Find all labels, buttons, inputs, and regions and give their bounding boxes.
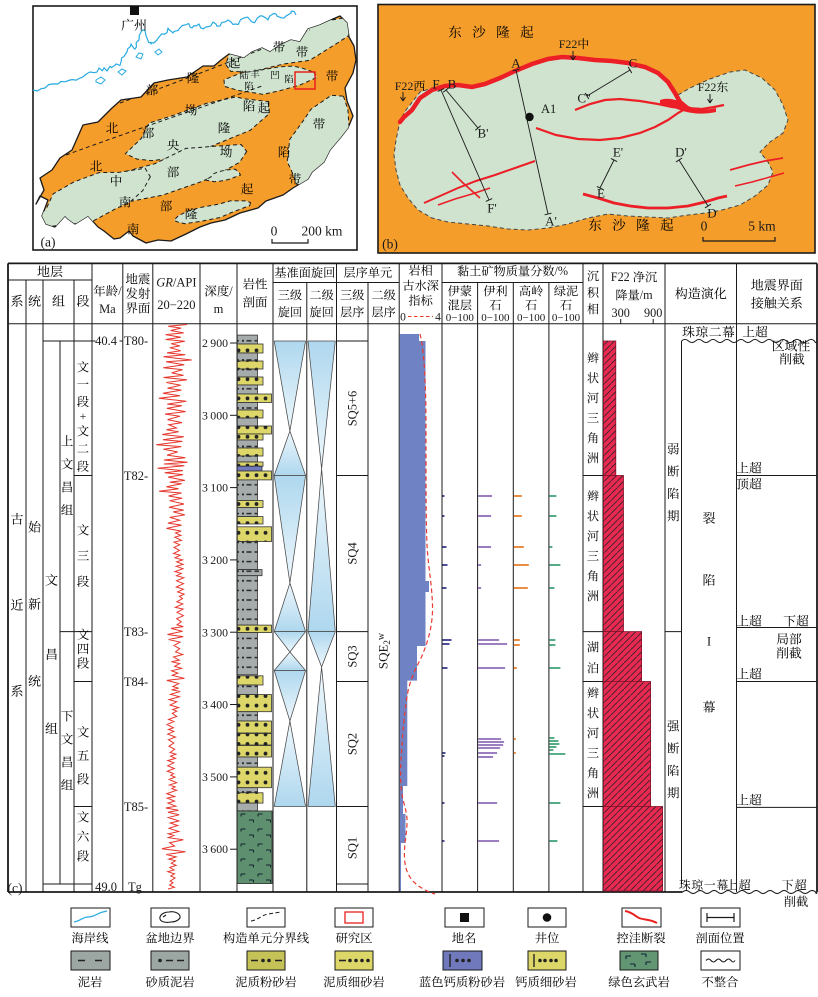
svg-text:SQ3: SQ3 <box>345 645 359 667</box>
svg-text:F22: F22 <box>611 270 630 284</box>
svg-text:/: / <box>118 284 122 298</box>
svg-text:A': A' <box>545 213 557 228</box>
svg-text:SQ5+6: SQ5+6 <box>345 391 359 427</box>
svg-text:D: D <box>707 205 716 220</box>
svg-text:D': D' <box>675 144 687 159</box>
svg-text:900: 900 <box>644 306 662 320</box>
svg-text:2 900: 2 900 <box>202 336 228 350</box>
svg-text:T83-: T83- <box>124 625 148 639</box>
svg-text:0−100: 0−100 <box>481 312 510 324</box>
svg-text:C: C <box>629 55 638 70</box>
svg-text:(c): (c) <box>8 881 23 896</box>
svg-text:300: 300 <box>612 306 630 320</box>
svg-text:+: + <box>80 409 87 423</box>
svg-text:A: A <box>511 55 521 70</box>
svg-text:E': E' <box>613 144 623 159</box>
svg-text:A1: A1 <box>541 102 556 116</box>
svg-text:3 100: 3 100 <box>202 481 228 495</box>
svg-text:GR/API: GR/API <box>156 276 196 290</box>
svg-text:4: 4 <box>435 311 441 323</box>
svg-text:3 000: 3 000 <box>202 408 228 422</box>
svg-text:49.0: 49.0 <box>95 880 117 894</box>
svg-text:F': F' <box>487 200 497 215</box>
svg-text:m: m <box>214 302 224 316</box>
svg-text:3 500: 3 500 <box>202 770 228 784</box>
svg-text:SQ2: SQ2 <box>345 733 359 755</box>
svg-text:0−100: 0−100 <box>446 312 475 324</box>
svg-text:F22: F22 <box>395 79 414 93</box>
svg-text:0: 0 <box>400 311 406 323</box>
svg-text:I: I <box>707 633 711 648</box>
svg-text:B': B' <box>477 125 488 140</box>
svg-text:0−100: 0−100 <box>517 312 546 324</box>
svg-text:SQ1: SQ1 <box>345 837 359 859</box>
svg-text:/: / <box>229 284 233 298</box>
svg-text:0−100: 0−100 <box>552 312 581 324</box>
svg-text:3 400: 3 400 <box>202 698 228 712</box>
svg-text:3 600: 3 600 <box>202 842 228 856</box>
svg-text:(a): (a) <box>41 235 56 250</box>
svg-text:0: 0 <box>701 219 708 234</box>
svg-text:/%: /% <box>555 264 569 278</box>
svg-text:T82-: T82- <box>124 469 148 483</box>
svg-text:Ma: Ma <box>99 302 116 316</box>
svg-text:Tg: Tg <box>128 880 143 894</box>
svg-text:E: E <box>597 185 605 200</box>
svg-text:/m: /m <box>640 288 653 302</box>
svg-text:20−220: 20−220 <box>157 298 195 312</box>
svg-text:F: F <box>432 76 439 91</box>
svg-text:T84-: T84- <box>124 675 148 689</box>
svg-text:5 km: 5 km <box>748 219 776 234</box>
svg-text:(b): (b) <box>382 237 398 252</box>
svg-text:200 km: 200 km <box>302 224 343 239</box>
svg-text:SQ4: SQ4 <box>345 542 359 565</box>
svg-text:3 300: 3 300 <box>202 625 228 639</box>
svg-text:0: 0 <box>271 224 278 239</box>
svg-text:3 200: 3 200 <box>202 553 228 567</box>
svg-text:T85-: T85- <box>124 800 148 814</box>
svg-text:F22: F22 <box>698 80 717 94</box>
svg-text:T80-: T80- <box>124 334 148 348</box>
svg-text:F22: F22 <box>559 37 578 51</box>
svg-text:C'': C'' <box>577 90 590 105</box>
svg-text:40.4: 40.4 <box>95 334 118 348</box>
svg-text:B: B <box>448 76 457 91</box>
